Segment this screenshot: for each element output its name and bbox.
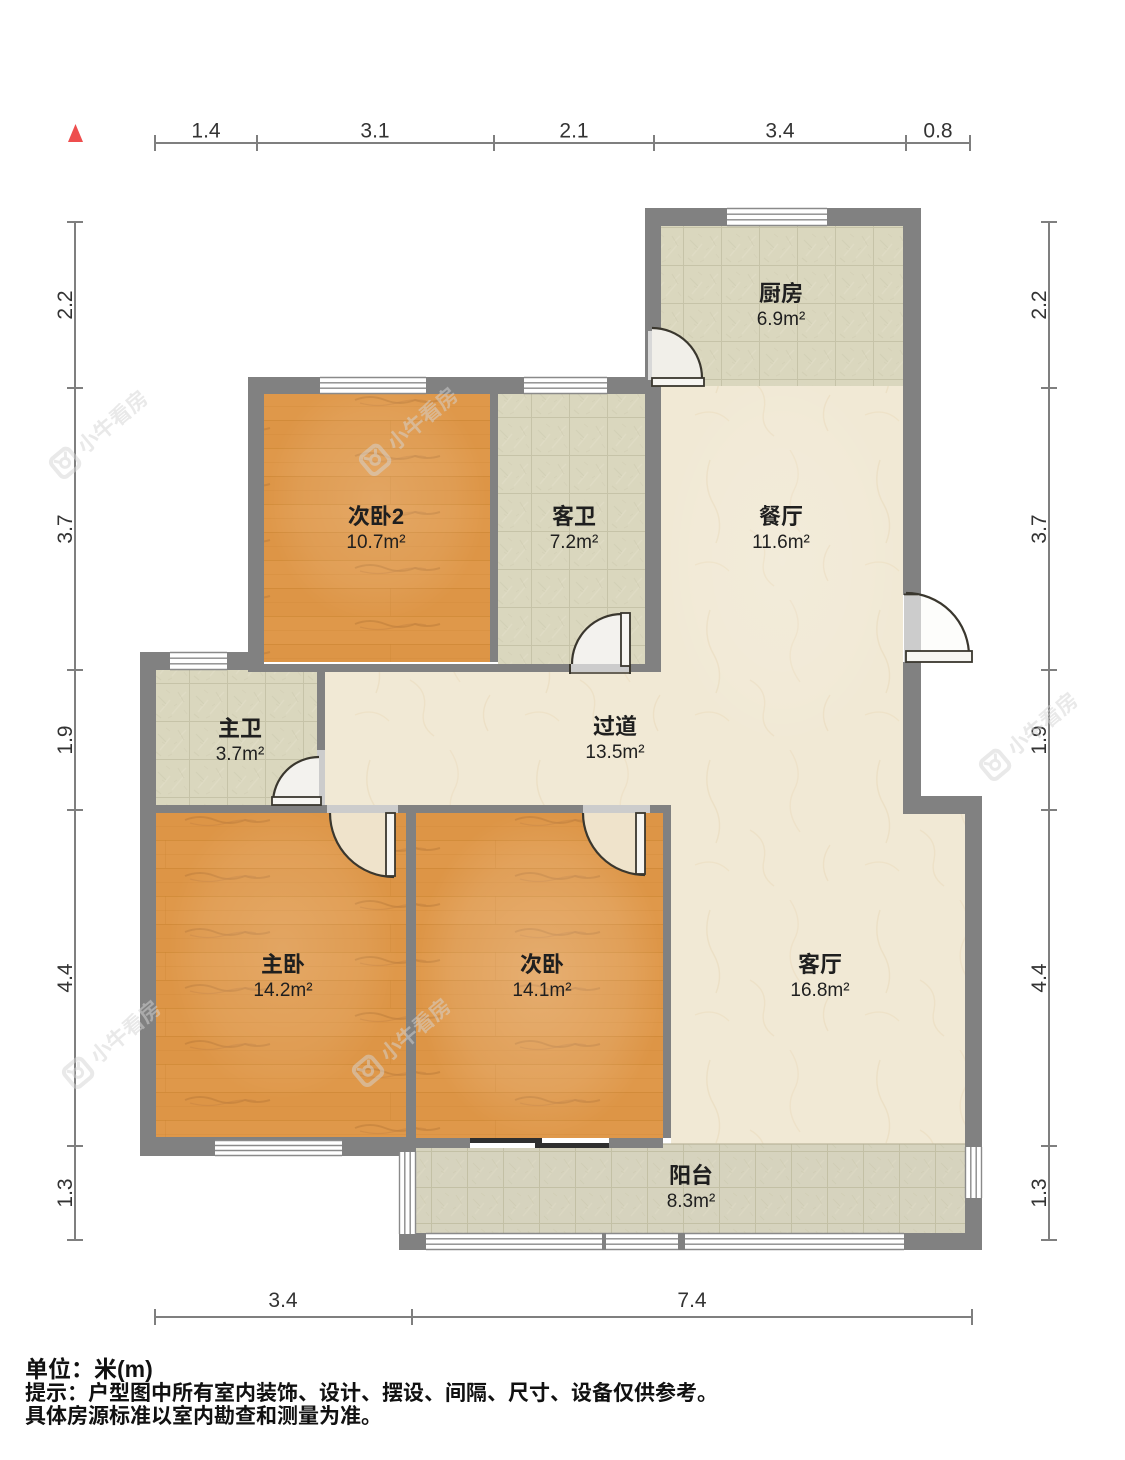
svg-text:1.3: 1.3 bbox=[54, 1178, 77, 1207]
svg-text:1.3: 1.3 bbox=[1028, 1178, 1051, 1207]
svg-text:4.4: 4.4 bbox=[54, 963, 77, 993]
svg-text:主卧: 主卧 bbox=[261, 947, 305, 979]
svg-text:客卫: 客卫 bbox=[552, 499, 596, 531]
svg-text:1.9: 1.9 bbox=[54, 725, 77, 754]
svg-text:3.4: 3.4 bbox=[268, 1289, 298, 1312]
svg-text:4.4: 4.4 bbox=[1028, 963, 1051, 993]
svg-text:7.4: 7.4 bbox=[677, 1289, 707, 1312]
svg-text:10.7m²: 10.7m² bbox=[346, 532, 405, 553]
svg-text:3.4: 3.4 bbox=[765, 120, 795, 143]
svg-text:客厅: 客厅 bbox=[798, 947, 842, 979]
svg-text:11.6m²: 11.6m² bbox=[752, 532, 810, 553]
svg-text:14.2m²: 14.2m² bbox=[253, 980, 312, 1001]
svg-text:过道: 过道 bbox=[593, 709, 637, 741]
svg-text:3.7m²: 3.7m² bbox=[216, 744, 265, 765]
svg-text:餐厅: 餐厅 bbox=[759, 499, 803, 531]
svg-text:8.3m²: 8.3m² bbox=[667, 1191, 716, 1212]
svg-text:14.1m²: 14.1m² bbox=[512, 980, 571, 1001]
svg-text:主卫: 主卫 bbox=[218, 711, 262, 743]
svg-text:16.8m²: 16.8m² bbox=[790, 980, 849, 1001]
svg-text:次卧: 次卧 bbox=[520, 947, 564, 979]
svg-text:0.8: 0.8 bbox=[923, 120, 952, 143]
svg-text:次卧2: 次卧2 bbox=[348, 499, 404, 531]
svg-text:3.7: 3.7 bbox=[54, 514, 77, 543]
svg-text:小牛看房: 小牛看房 bbox=[70, 383, 154, 460]
svg-text:7.2m²: 7.2m² bbox=[550, 532, 599, 553]
svg-text:6.9m²: 6.9m² bbox=[757, 309, 806, 330]
svg-text:3.1: 3.1 bbox=[360, 120, 389, 143]
svg-text:2.1: 2.1 bbox=[559, 120, 588, 143]
svg-text:厨房: 厨房 bbox=[759, 276, 803, 308]
svg-text:1.4: 1.4 bbox=[191, 120, 221, 143]
svg-text:具体房源标准以室内勘查和测量为准。: 具体房源标准以室内勘查和测量为准。 bbox=[25, 1400, 382, 1430]
svg-text:3.7: 3.7 bbox=[1028, 514, 1051, 543]
svg-text:2.2: 2.2 bbox=[1028, 290, 1051, 319]
svg-text:13.5m²: 13.5m² bbox=[585, 742, 644, 763]
svg-text:阳台: 阳台 bbox=[669, 1158, 713, 1190]
svg-text:2.2: 2.2 bbox=[54, 290, 77, 319]
